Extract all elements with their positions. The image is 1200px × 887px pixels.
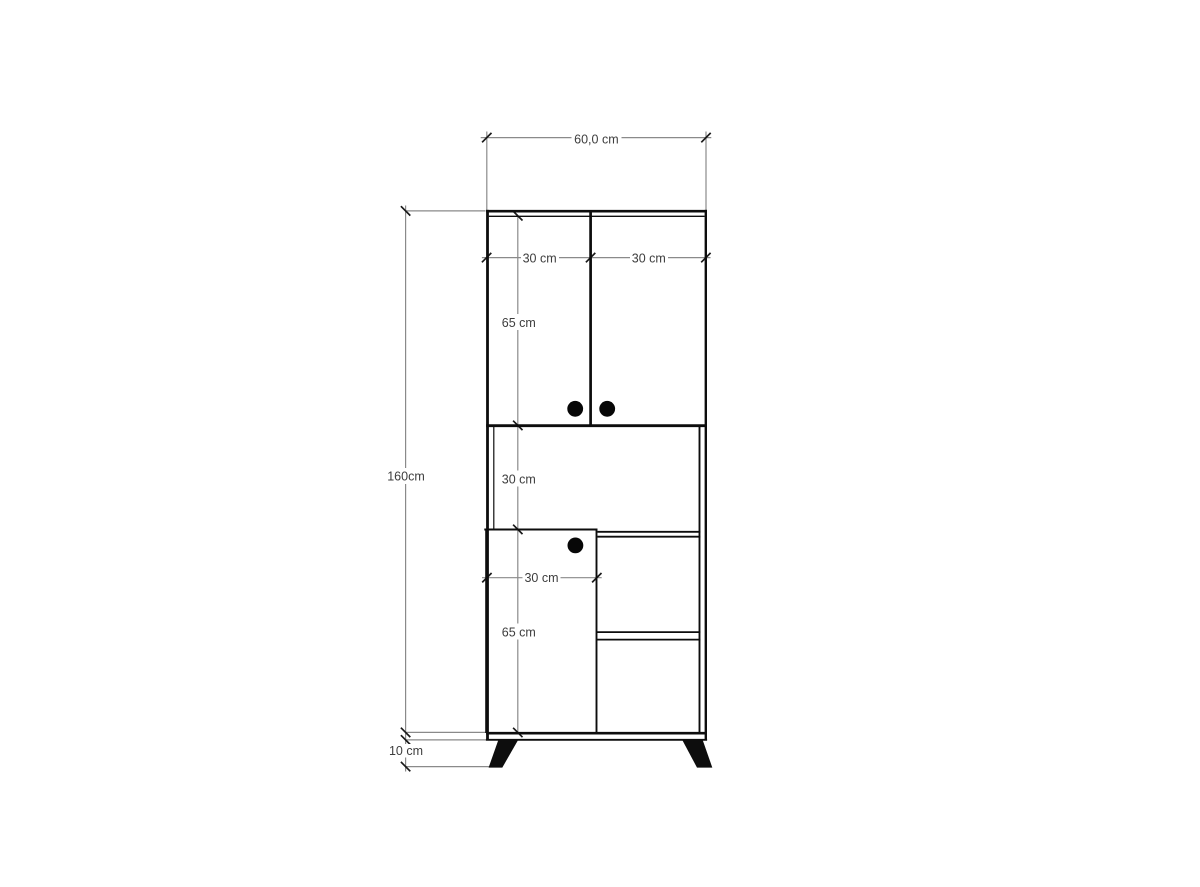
svg-text:30 cm: 30 cm	[524, 571, 558, 585]
svg-text:30 cm: 30 cm	[632, 251, 666, 265]
svg-text:60,0 cm: 60,0 cm	[574, 133, 618, 147]
svg-text:30 cm: 30 cm	[523, 251, 557, 265]
svg-text:160cm: 160cm	[387, 470, 425, 484]
svg-text:10 cm: 10 cm	[389, 744, 423, 758]
svg-text:30 cm: 30 cm	[502, 472, 536, 486]
svg-text:65 cm: 65 cm	[502, 625, 536, 639]
svg-text:65 cm: 65 cm	[502, 316, 536, 330]
